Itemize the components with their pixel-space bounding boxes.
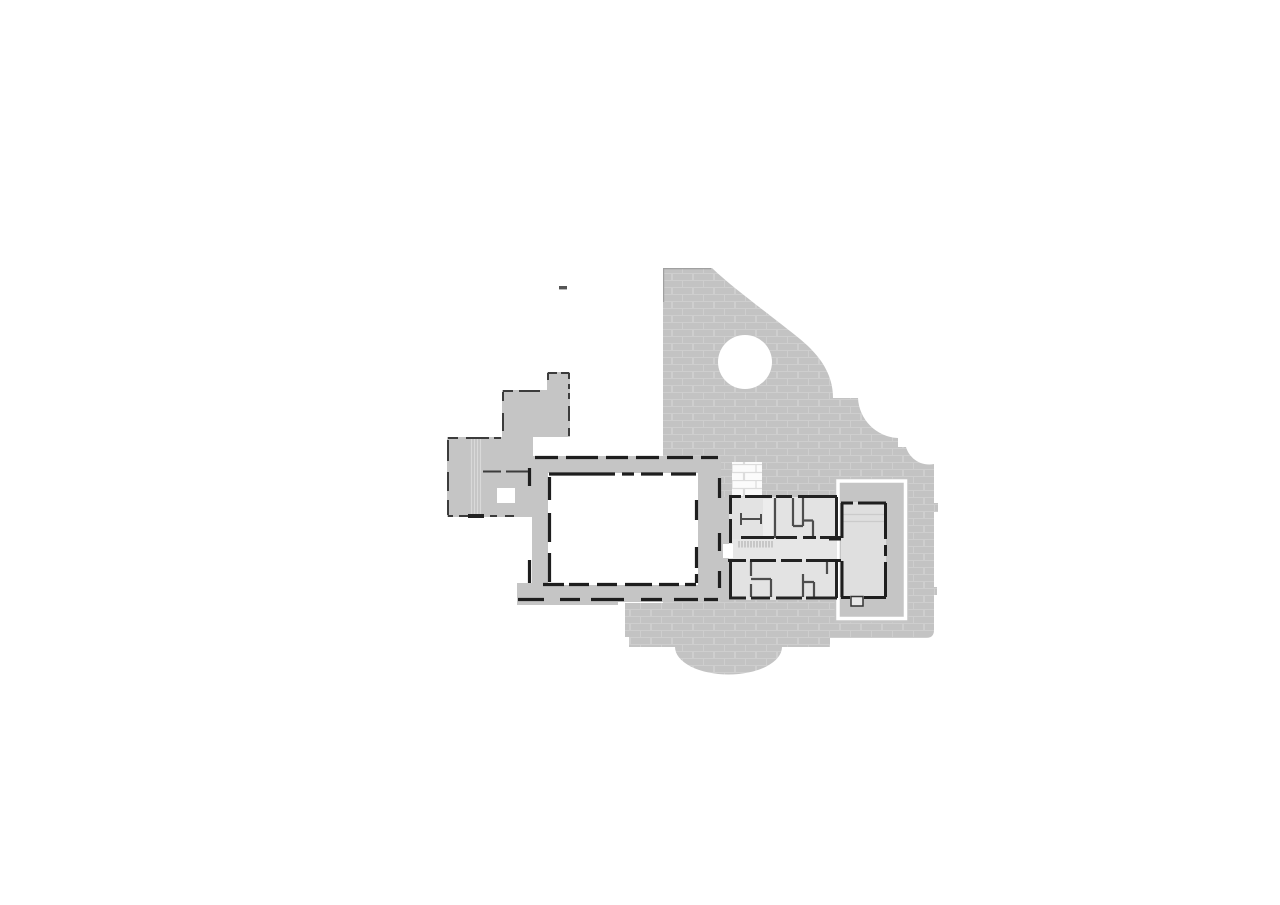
tower-void	[718, 335, 772, 389]
page-background	[0, 0, 1280, 905]
niche-recess	[763, 499, 773, 537]
cell-block	[723, 497, 841, 601]
door-opening-west	[723, 544, 733, 558]
paved-patch	[732, 462, 762, 498]
floor-plan-drawing	[0, 0, 1280, 905]
floor-plan-page	[0, 0, 1280, 905]
west-wing-window-void	[497, 488, 515, 503]
courtyard	[548, 473, 698, 585]
chapel-door-notch	[851, 597, 863, 607]
west-wing-wall-chunk	[468, 514, 484, 518]
courtyard-band-foot	[517, 583, 532, 605]
chapel-fill	[841, 502, 886, 598]
survey-mark	[559, 286, 567, 289]
